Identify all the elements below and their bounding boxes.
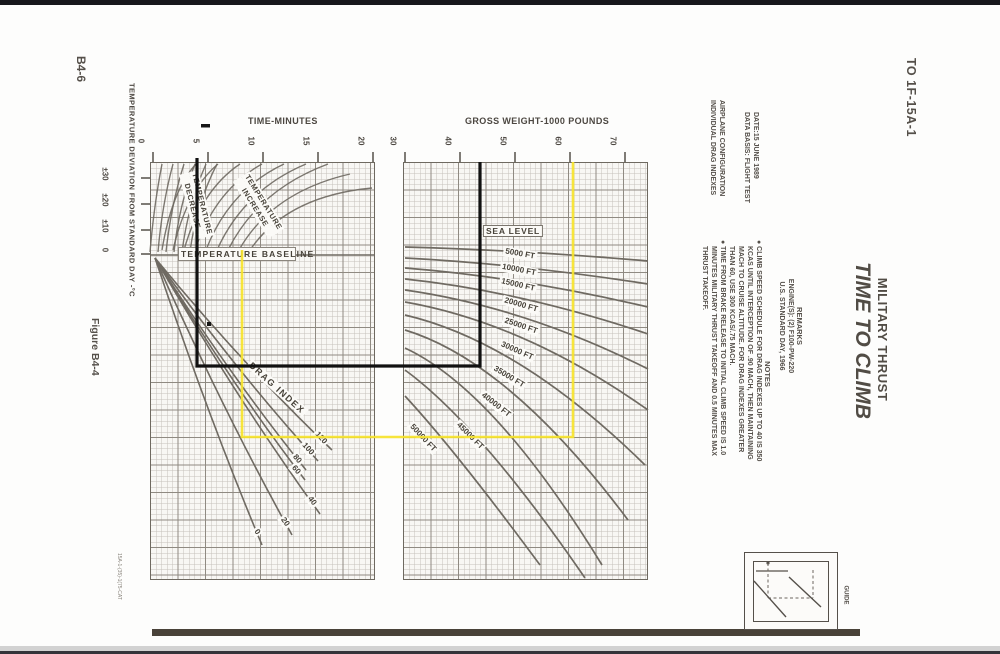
guide-label: GUIDE [841,585,850,604]
guide-diagram-layer [0,0,1000,654]
scanned-chart-page: TIME-MINUTES GROSS WEIGHT-1000 POUNDS 0 … [0,0,1000,654]
